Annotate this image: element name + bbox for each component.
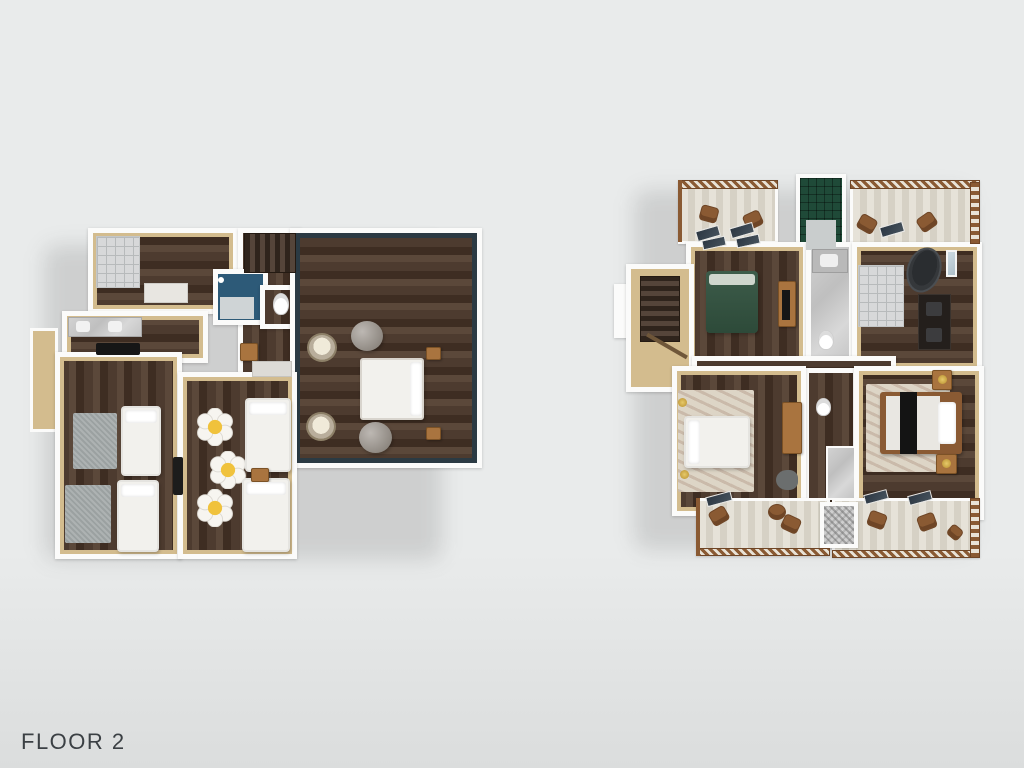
floor-label: FLOOR 2 xyxy=(21,729,126,755)
sink xyxy=(926,328,942,342)
shower-head xyxy=(218,277,224,283)
deck-railing-ladder xyxy=(970,182,980,244)
deck-railing xyxy=(678,180,778,189)
tv xyxy=(782,290,790,320)
staircase xyxy=(244,233,296,273)
sink xyxy=(820,254,838,267)
nightstand-lamp xyxy=(678,398,687,407)
render-stage: FLOOR 2 xyxy=(0,0,1024,768)
deck-railing xyxy=(678,180,682,242)
staircase xyxy=(640,276,680,342)
desk-chair xyxy=(240,343,258,361)
deck-railing xyxy=(832,550,980,558)
shower-floor xyxy=(220,297,254,319)
deck-top-left xyxy=(678,180,778,244)
door-panel-dark xyxy=(173,457,183,495)
exterior-ledge xyxy=(30,328,58,432)
hall-counter xyxy=(252,361,292,377)
shower xyxy=(96,236,140,288)
bed-pillows xyxy=(938,402,956,444)
basket-chair xyxy=(307,333,337,362)
sink xyxy=(926,302,942,316)
bed-pillow xyxy=(121,484,155,497)
daisy-rug xyxy=(196,408,234,446)
nightstand-lamp xyxy=(938,375,947,384)
bed-pillow xyxy=(249,402,287,415)
bed-pillow xyxy=(709,274,755,285)
deck-railing xyxy=(696,498,700,556)
bed-pillow xyxy=(246,482,286,495)
basket-chair xyxy=(306,412,336,441)
bed-throw-black xyxy=(900,392,917,454)
nightstand xyxy=(426,347,441,360)
desk-dark xyxy=(96,343,140,355)
sink xyxy=(108,321,122,332)
toilet xyxy=(273,293,289,315)
deck-railing-ladder xyxy=(970,498,980,558)
rug-gray xyxy=(73,413,117,469)
deck-railing xyxy=(696,548,830,556)
nightstand xyxy=(251,468,269,482)
vanity-counter xyxy=(144,283,188,303)
shower xyxy=(826,446,856,500)
deck-railing xyxy=(850,180,980,189)
shower xyxy=(858,265,904,327)
floorplan-left-unit xyxy=(30,225,455,565)
sink xyxy=(76,321,90,332)
pouf xyxy=(359,422,392,453)
shower-floor xyxy=(806,220,836,250)
rug-gray xyxy=(65,485,111,543)
toilet xyxy=(816,398,831,416)
nightstand-lamp xyxy=(680,470,689,479)
armchair-gray xyxy=(776,470,798,490)
daisy-rug xyxy=(196,489,234,527)
mirror xyxy=(946,250,957,277)
bed-pillow xyxy=(688,420,700,464)
room-bathroom-small xyxy=(820,502,858,548)
nightstand-lamp xyxy=(942,459,951,468)
pouf xyxy=(351,321,383,351)
deck-top-right xyxy=(850,180,980,246)
bed-pillows xyxy=(410,362,422,416)
bed-pillow xyxy=(125,410,157,423)
nightstand xyxy=(426,427,441,440)
toilet xyxy=(818,330,834,350)
floorplan-right-unit xyxy=(618,172,986,564)
dresser xyxy=(782,402,802,454)
